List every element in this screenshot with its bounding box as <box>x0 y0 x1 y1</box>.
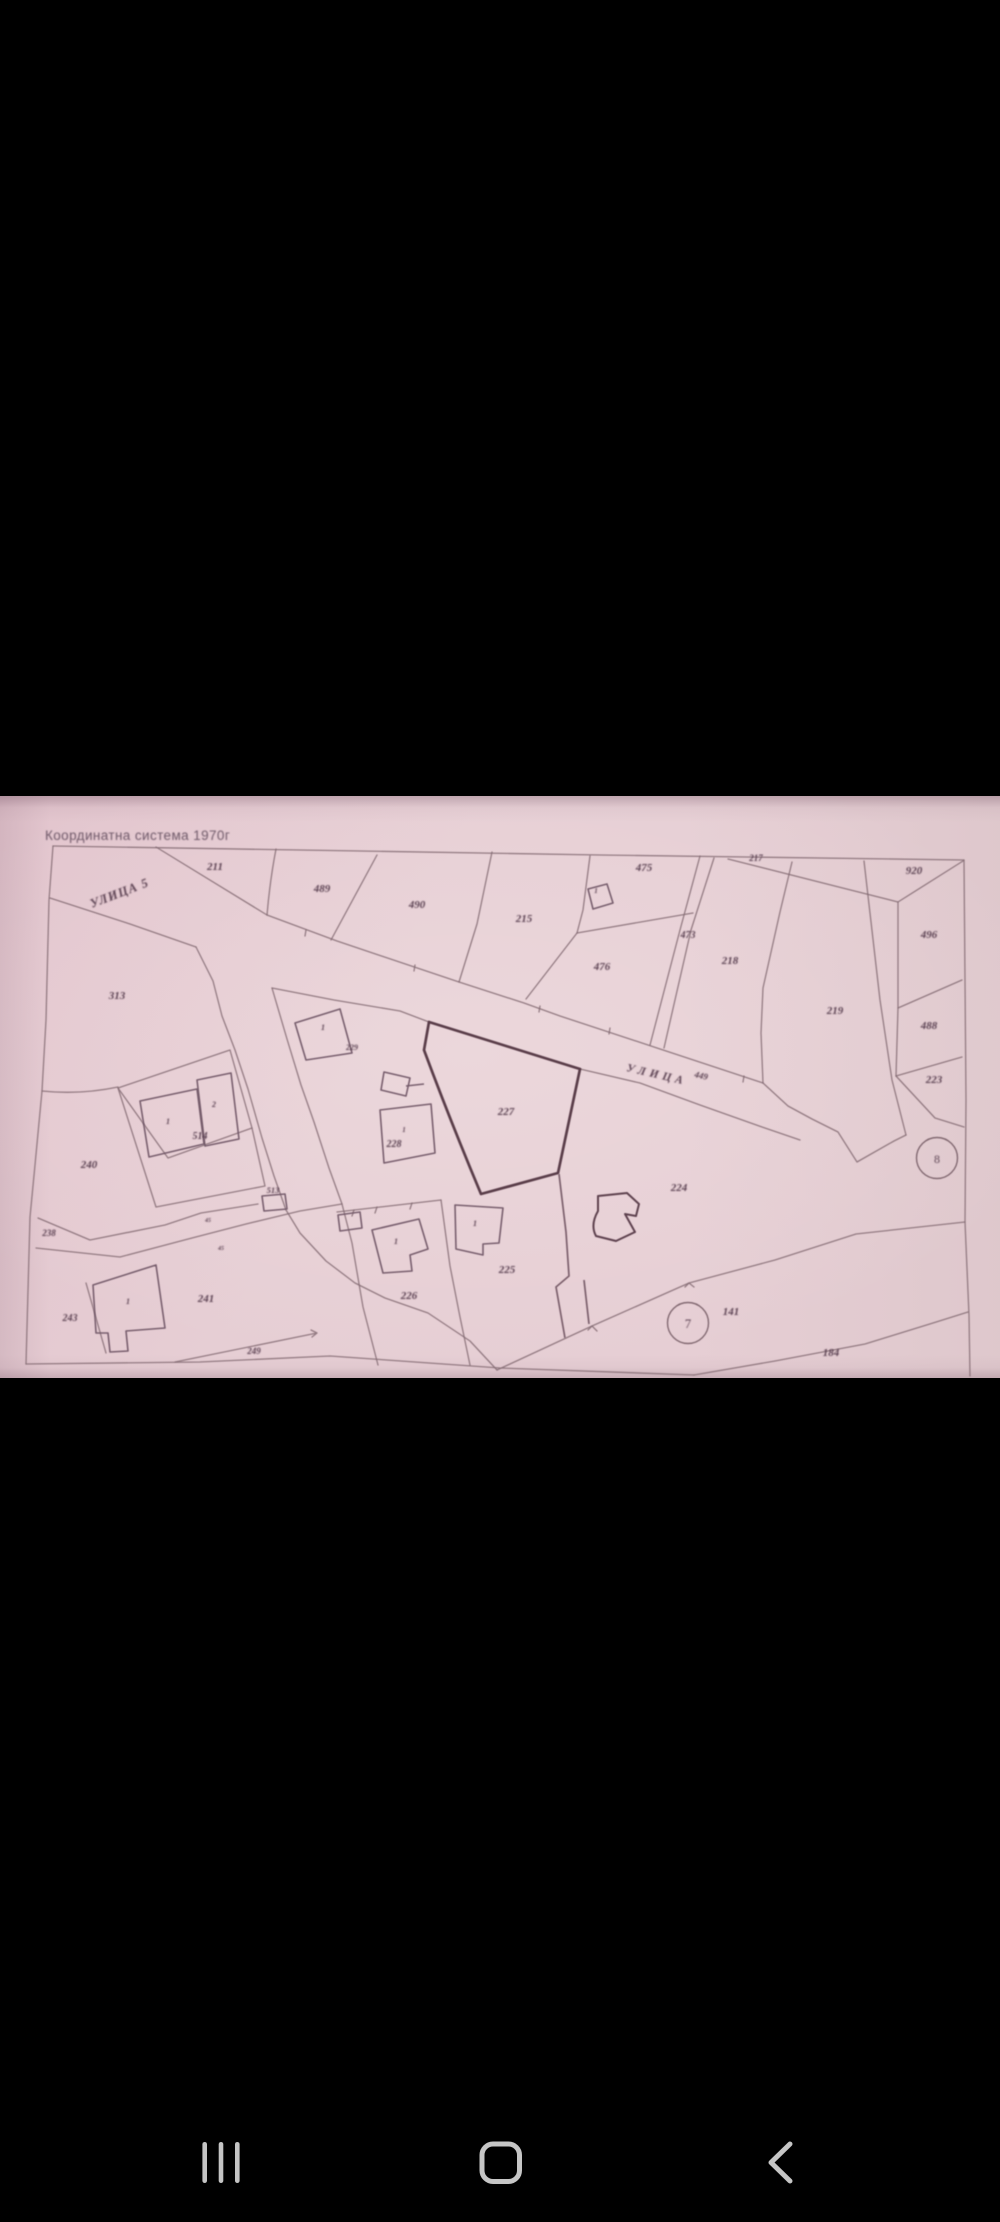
svg-text:215: 215 <box>515 913 533 925</box>
svg-text:1: 1 <box>321 1023 325 1032</box>
svg-text:184: 184 <box>823 1347 840 1359</box>
svg-text:141: 141 <box>723 1306 740 1318</box>
svg-text:489: 489 <box>313 883 331 895</box>
svg-text:2: 2 <box>211 1100 216 1109</box>
svg-text:224: 224 <box>670 1182 688 1194</box>
svg-text:8: 8 <box>934 1152 940 1166</box>
svg-text:313: 313 <box>108 990 126 1002</box>
svg-text:449: 449 <box>693 1069 710 1082</box>
svg-text:1: 1 <box>402 1126 406 1134</box>
svg-text:920: 920 <box>906 865 923 877</box>
svg-text:240: 240 <box>80 1159 98 1171</box>
svg-text:1: 1 <box>126 1297 130 1306</box>
svg-text:476: 476 <box>593 961 611 973</box>
svg-text:514: 514 <box>193 1131 208 1142</box>
svg-text:238: 238 <box>41 1228 56 1238</box>
svg-text:228: 228 <box>386 1139 402 1150</box>
svg-text:488: 488 <box>920 1020 938 1032</box>
svg-text:219: 219 <box>826 1005 844 1017</box>
svg-text:211: 211 <box>206 861 223 873</box>
svg-text:218: 218 <box>721 955 739 967</box>
svg-text:7: 7 <box>685 1316 692 1331</box>
svg-text:241: 241 <box>197 1293 215 1305</box>
svg-text:473: 473 <box>680 930 696 941</box>
svg-text:513: 513 <box>267 1185 281 1195</box>
svg-text:УЛИЦА: УЛИЦА <box>625 1062 688 1088</box>
svg-text:229: 229 <box>345 1043 358 1052</box>
svg-text:249: 249 <box>246 1346 261 1356</box>
svg-text:Координатна система 1970г: Координатна система 1970г <box>45 828 230 843</box>
svg-text:1: 1 <box>473 1219 477 1228</box>
svg-text:226: 226 <box>400 1290 418 1302</box>
svg-text:475: 475 <box>635 862 653 874</box>
svg-text:1: 1 <box>166 1117 170 1126</box>
svg-text:1: 1 <box>394 1237 398 1246</box>
svg-text:1: 1 <box>594 887 598 895</box>
svg-text:243: 243 <box>62 1313 78 1324</box>
svg-text:УЛИЦА 5: УЛИЦА 5 <box>88 876 151 911</box>
svg-text:45: 45 <box>204 1218 211 1224</box>
svg-text:217: 217 <box>748 853 763 863</box>
svg-text:496: 496 <box>920 929 938 941</box>
svg-text:45: 45 <box>217 1246 224 1252</box>
svg-text:223: 223 <box>925 1074 943 1086</box>
svg-text:227: 227 <box>497 1106 515 1118</box>
svg-text:490: 490 <box>408 899 426 911</box>
svg-text:225: 225 <box>498 1264 516 1276</box>
